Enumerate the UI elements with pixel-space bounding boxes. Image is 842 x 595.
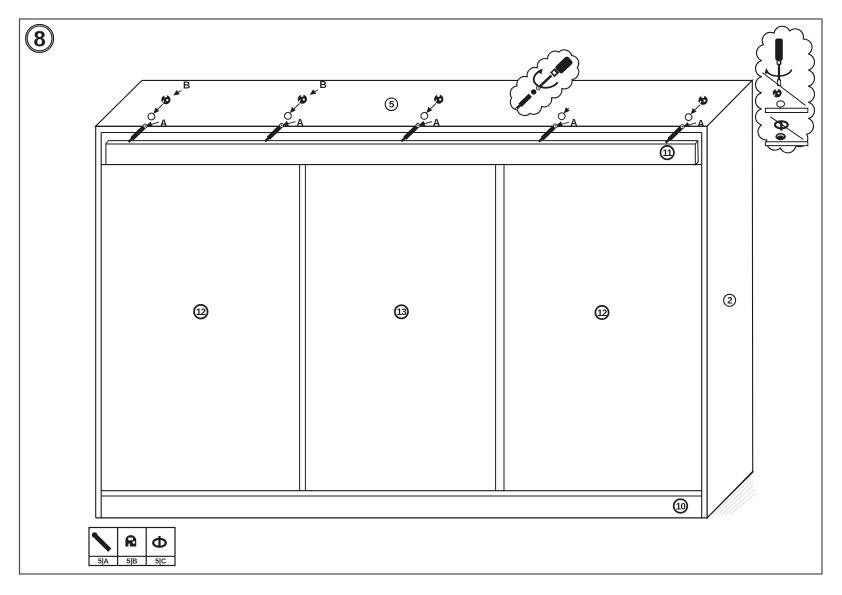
- svg-text:11: 11: [663, 148, 673, 159]
- svg-text:A: A: [297, 118, 304, 129]
- svg-text:A: A: [570, 118, 577, 129]
- svg-text:A: A: [160, 118, 167, 129]
- svg-text:5|B: 5|B: [126, 559, 137, 566]
- svg-text:8: 8: [33, 26, 45, 51]
- svg-text:12: 12: [597, 308, 607, 319]
- svg-text:A: A: [433, 118, 440, 129]
- svg-text:B: B: [183, 81, 190, 92]
- svg-text:A: A: [697, 119, 704, 130]
- svg-text:12: 12: [196, 307, 206, 318]
- svg-text:2: 2: [727, 296, 732, 307]
- svg-text:5|C: 5|C: [155, 559, 166, 566]
- svg-text:5|A: 5|A: [98, 559, 109, 566]
- svg-text:B: B: [320, 80, 327, 91]
- svg-text:13: 13: [397, 307, 407, 318]
- svg-text:10: 10: [676, 501, 686, 512]
